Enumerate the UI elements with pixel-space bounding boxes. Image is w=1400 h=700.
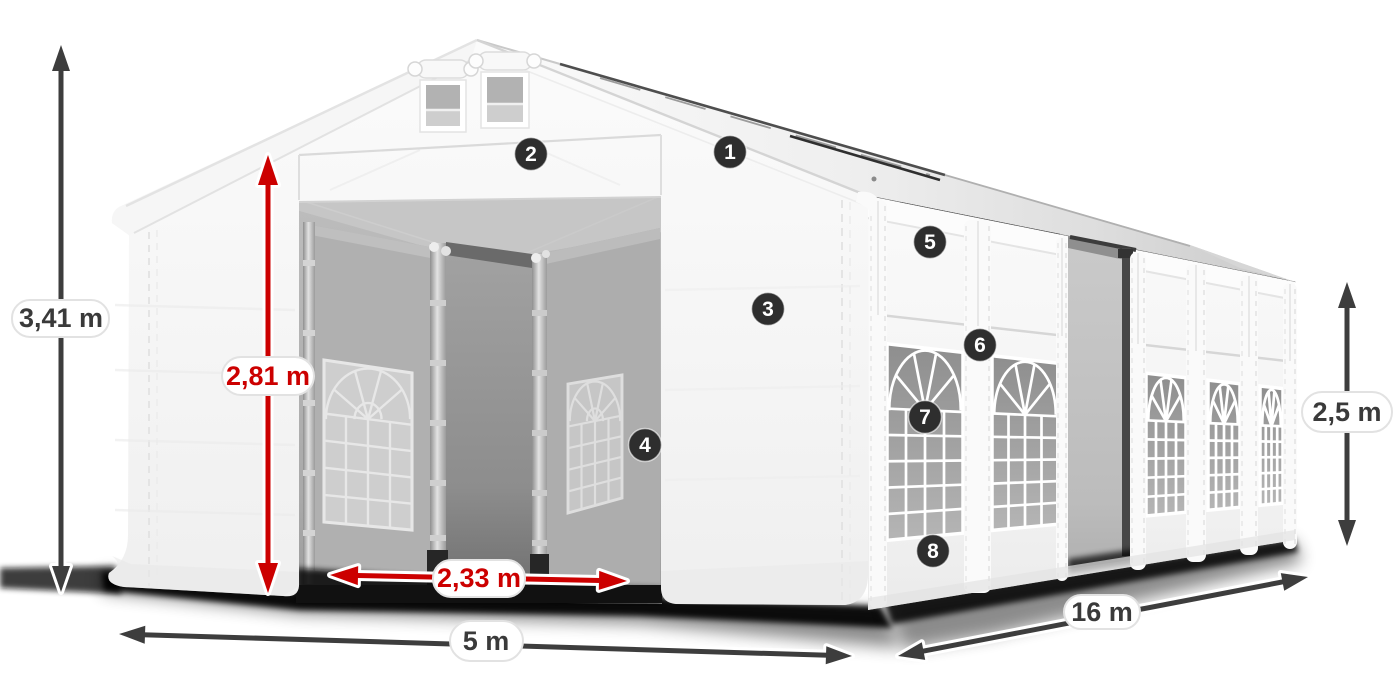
svg-text:1: 1 (724, 141, 736, 164)
svg-text:16 m: 16 m (1071, 597, 1133, 627)
svg-text:8: 8 (927, 540, 939, 563)
svg-text:2,81 m: 2,81 m (226, 361, 310, 391)
svg-text:4: 4 (639, 434, 651, 457)
svg-text:2: 2 (525, 143, 537, 166)
svg-text:2,5 m: 2,5 m (1312, 397, 1381, 427)
svg-text:5 m: 5 m (463, 626, 510, 656)
svg-text:5: 5 (924, 231, 936, 254)
svg-text:3: 3 (762, 298, 774, 321)
svg-text:6: 6 (974, 334, 986, 357)
svg-text:3,41 m: 3,41 m (19, 303, 103, 333)
svg-text:7: 7 (919, 406, 931, 429)
svg-text:2,33 m: 2,33 m (437, 563, 521, 593)
